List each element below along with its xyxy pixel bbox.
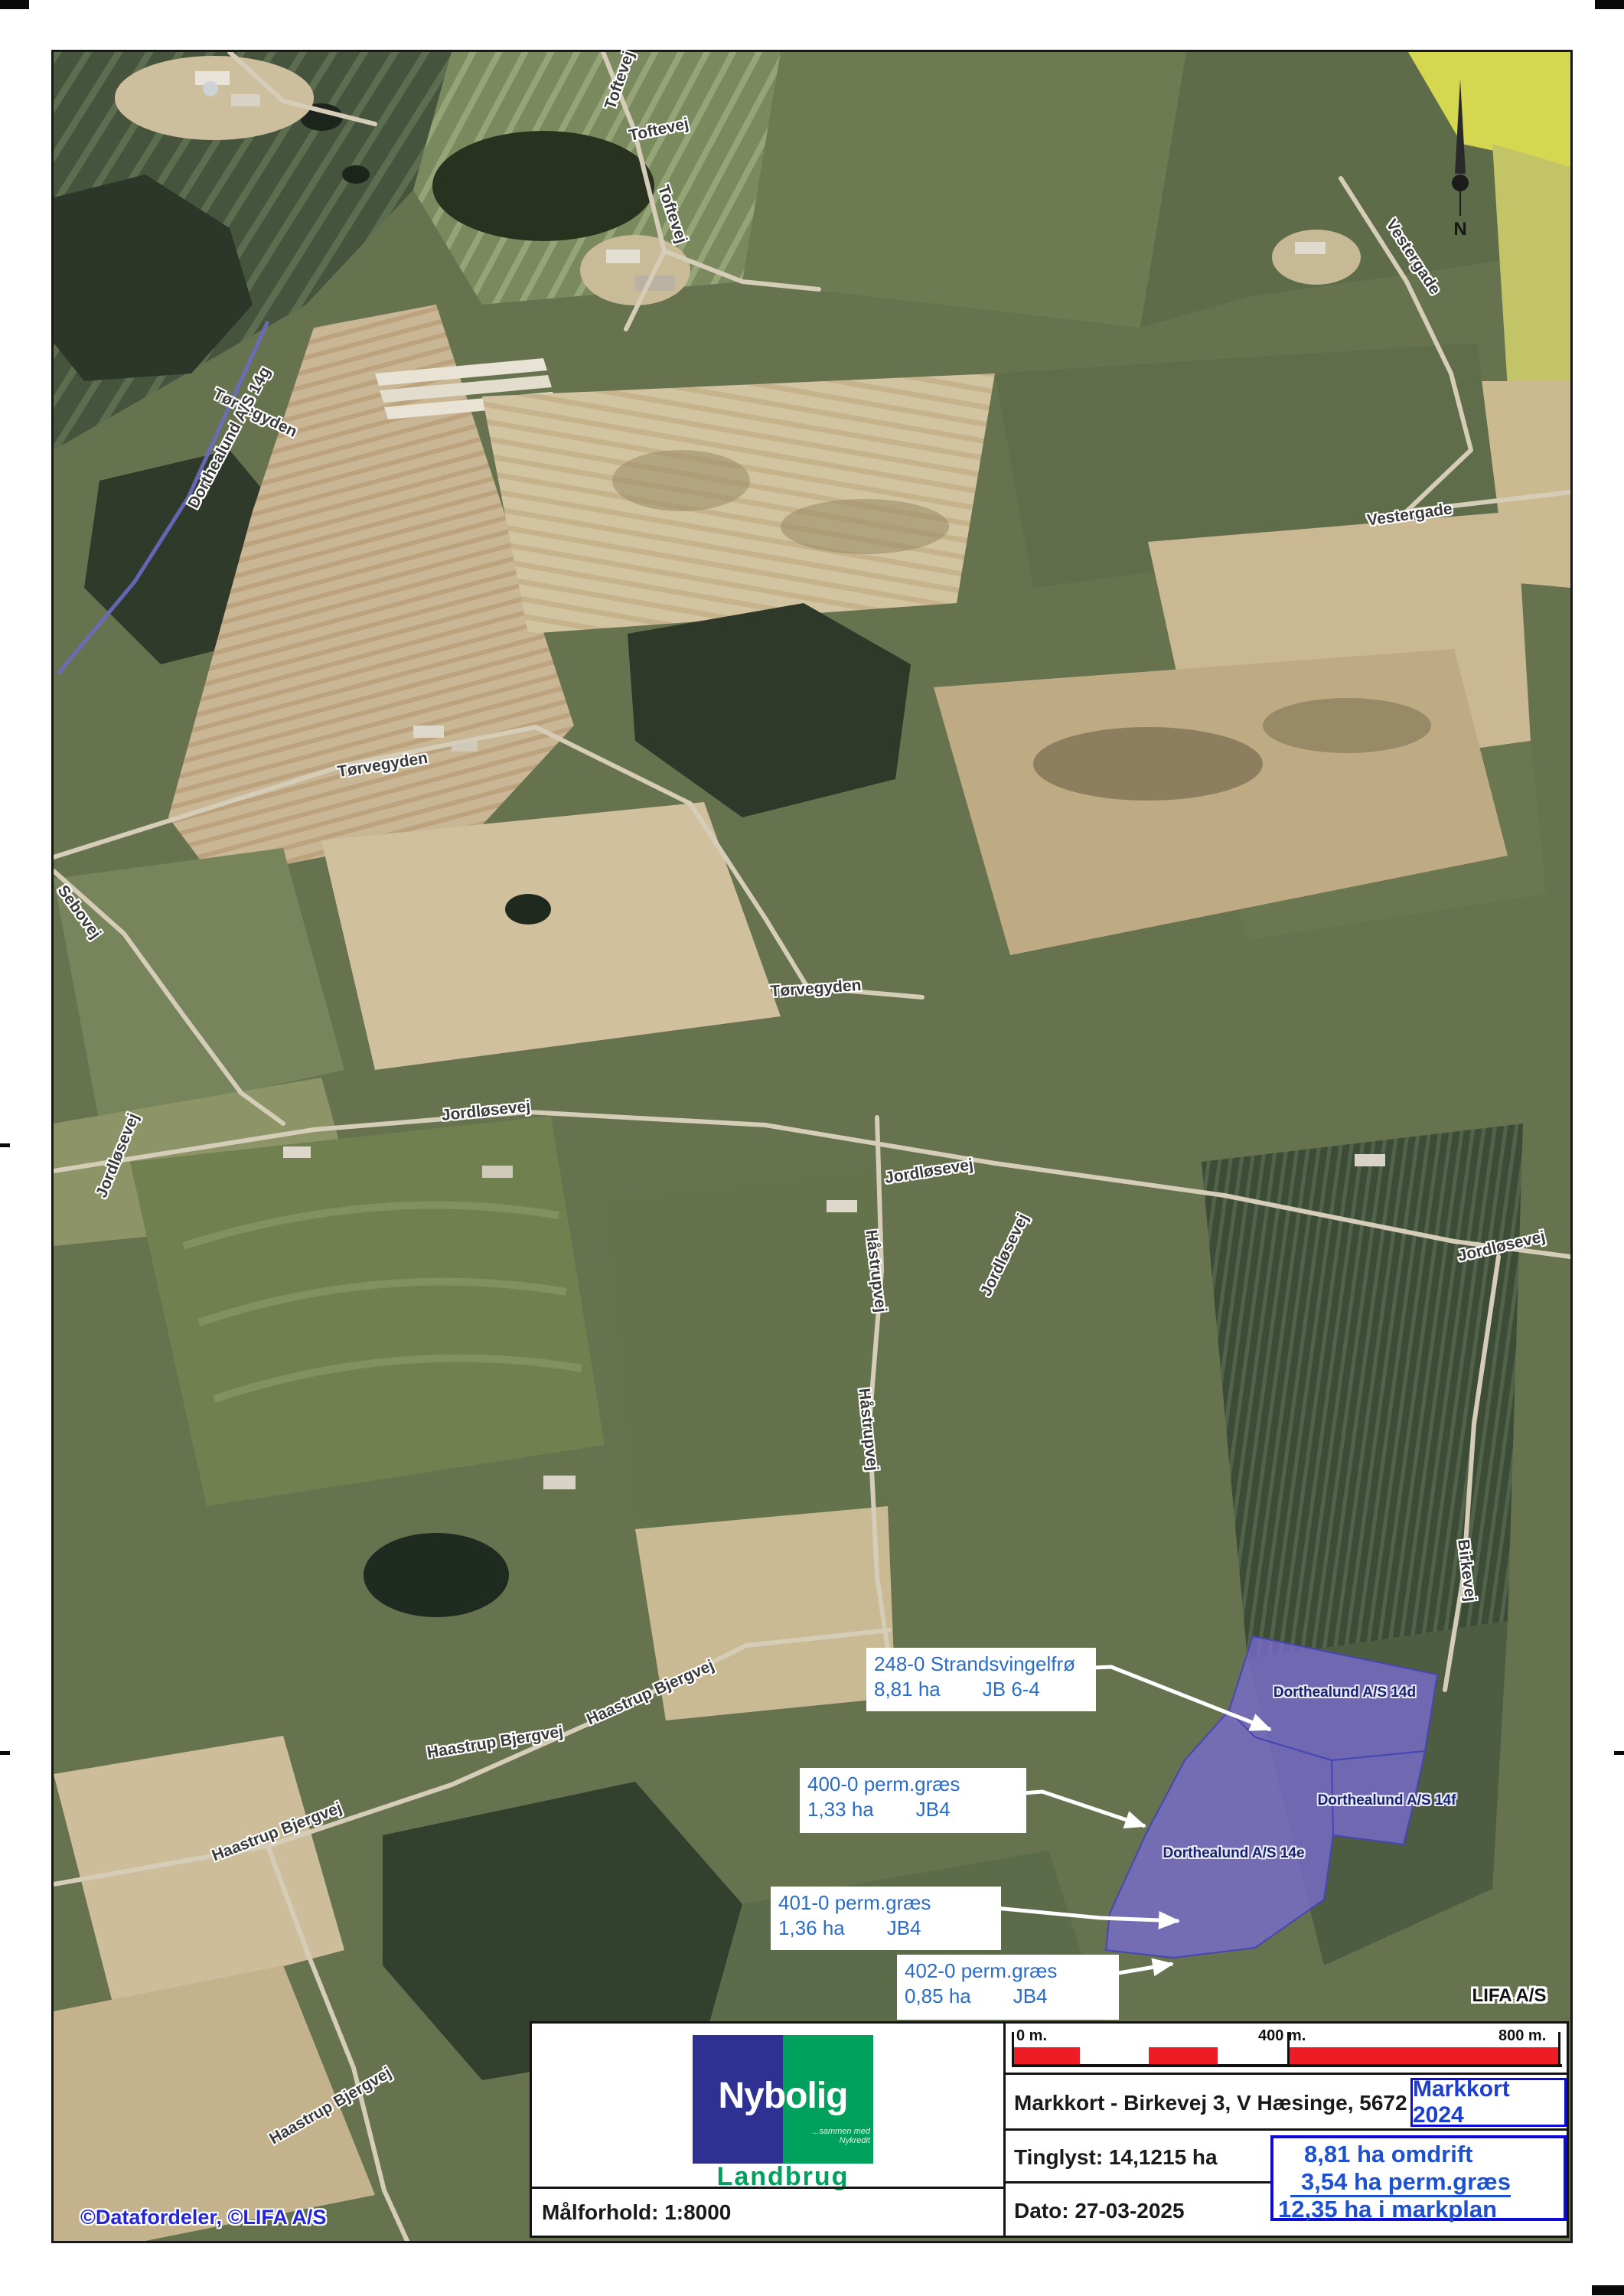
logo-brand-text: Nybolig bbox=[693, 2075, 873, 2117]
scalebar-segment bbox=[1287, 2047, 1560, 2064]
annotation-area: 0,85 ha bbox=[905, 1985, 971, 2007]
map-title: Markkort - Birkevej 3, V Hæsinge, 5672 B bbox=[1014, 2091, 1429, 2115]
annotation-401: 401-0 perm.græs 1,36 haJB4 bbox=[771, 1887, 1001, 1950]
badge-text: Markkort 2024 bbox=[1413, 2076, 1564, 2128]
scalebar-mid-label: 400 m. bbox=[1258, 2027, 1306, 2045]
north-label: N bbox=[1453, 219, 1466, 240]
annotation-title: 402-0 perm.græs bbox=[905, 1958, 1113, 1984]
north-arrow: N bbox=[1443, 73, 1477, 245]
tinglyst-text: Tinglyst: 14,1215 ha bbox=[1014, 2145, 1218, 2170]
parcel-label-14e: Dorthealund A/S 14e bbox=[1163, 1845, 1304, 1862]
scalebar-tick bbox=[1287, 2032, 1290, 2067]
copyright-watermark: ©Datafordeler, ©LIFA A/S bbox=[80, 2206, 326, 2229]
lifa-label: LIFA A/S bbox=[1472, 1985, 1547, 2007]
crop-mark bbox=[1614, 1751, 1624, 1755]
parcel-label-14f: Dorthealund A/S 14f bbox=[1318, 1792, 1456, 1809]
date-text: Dato: 27-03-2025 bbox=[1014, 2199, 1185, 2223]
annotation-title: 401-0 perm.græs bbox=[778, 1890, 995, 1916]
markkort-2024-badge: Markkort 2024 bbox=[1410, 2078, 1567, 2127]
crop-mark bbox=[0, 1143, 10, 1147]
scalebar-tick bbox=[1558, 2032, 1560, 2067]
annotation-400: 400-0 perm.græs 1,33 haJB4 bbox=[800, 1768, 1026, 1833]
crop-mark bbox=[0, 1751, 10, 1755]
page: N Toftevej Toftevej Toftevej Tørvegyden … bbox=[0, 0, 1624, 2296]
annotation-area: 8,81 ha bbox=[874, 1678, 941, 1701]
area-summary-box: 8,81 ha omdrift 3,54 ha perm.græs 12,35 … bbox=[1270, 2135, 1567, 2221]
logo-cell: Nybolig ...sammen med Nykredit Landbrug bbox=[532, 2024, 1006, 2187]
scale-text: Målforhold: 1:8000 bbox=[542, 2200, 731, 2225]
annotation-area: 1,36 ha bbox=[778, 1916, 845, 1939]
summary-markplan: 12,35 ha i markplan bbox=[1273, 2196, 1564, 2223]
annotation-soil: JB4 bbox=[887, 1916, 921, 1941]
crop-mark bbox=[1592, 2285, 1624, 2295]
summary-omdrift: 8,81 ha omdrift bbox=[1273, 2141, 1564, 2168]
nybolig-logo: Nybolig ...sammen med Nykredit bbox=[693, 2035, 873, 2164]
scalebar-segment bbox=[1149, 2047, 1218, 2064]
summary-perm: 3,54 ha perm.græs bbox=[1290, 2168, 1511, 2197]
annotation-area: 1,33 ha bbox=[807, 1798, 874, 1821]
scalebar-cell: 0 m. 400 m. 800 m. bbox=[1006, 2024, 1567, 2075]
annotation-402: 402-0 perm.græs 0,85 haJB4 bbox=[897, 1955, 1119, 2020]
parcel-label-14d: Dorthealund A/S 14d bbox=[1273, 1684, 1416, 1701]
annotation-title: 400-0 perm.græs bbox=[807, 1772, 1020, 1797]
annotation-soil: JB 6-4 bbox=[983, 1677, 1040, 1702]
annotation-title: 248-0 Strandsvingelfrø bbox=[874, 1652, 1090, 1677]
scalebar-segment bbox=[1012, 2047, 1080, 2064]
info-panel: Nybolig ...sammen med Nykredit Landbrug … bbox=[530, 2021, 1569, 2238]
logo-tagline: ...sammen med Nykredit bbox=[791, 2127, 870, 2145]
scalebar-tick bbox=[1012, 2032, 1014, 2067]
crop-mark bbox=[1595, 0, 1624, 9]
annotation-248: 248-0 Strandsvingelfrø 8,81 haJB 6-4 bbox=[866, 1648, 1096, 1711]
scalebar-end-label: 800 m. bbox=[1498, 2027, 1546, 2045]
scalebar-start-label: 0 m. bbox=[1016, 2027, 1047, 2045]
crop-mark bbox=[0, 0, 29, 9]
annotation-soil: JB4 bbox=[1013, 1984, 1048, 2009]
scale-text-cell: Målforhold: 1:8000 bbox=[532, 2187, 1006, 2236]
annotation-soil: JB4 bbox=[916, 1797, 951, 1822]
